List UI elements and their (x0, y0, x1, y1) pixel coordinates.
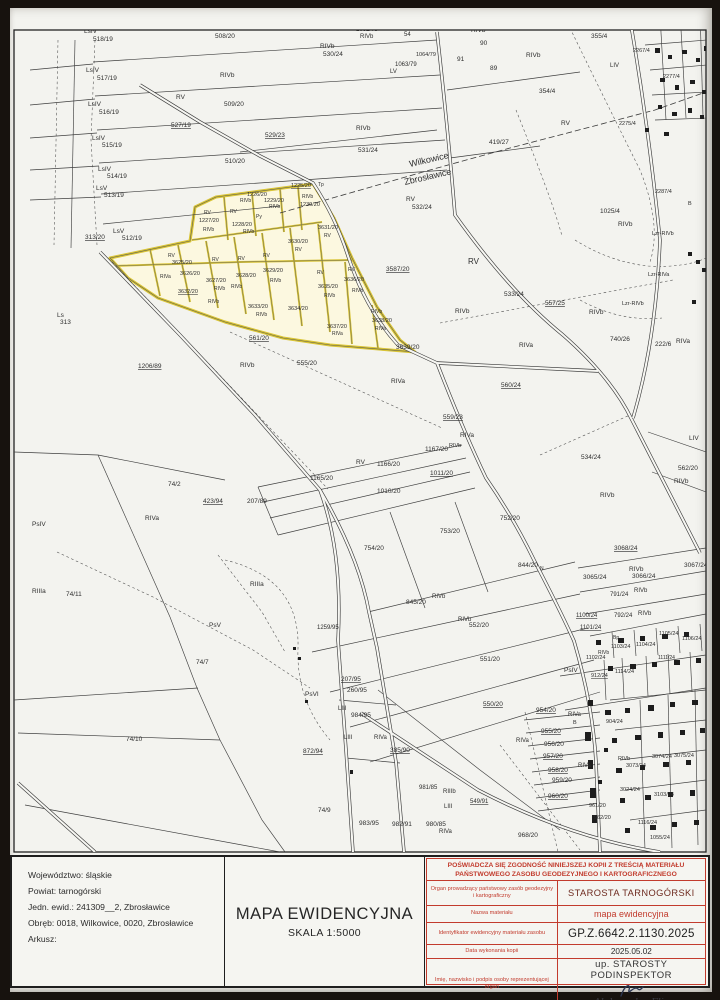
svg-text:355/4: 355/4 (591, 33, 608, 40)
svg-text:LsIV: LsIV (84, 28, 98, 35)
svg-text:RIVa: RIVa (516, 738, 530, 744)
svg-text:2267/4: 2267/4 (633, 48, 650, 54)
svg-text:3626/20: 3626/20 (180, 271, 200, 277)
svg-text:419/27: 419/27 (489, 139, 509, 146)
svg-text:792/24: 792/24 (614, 613, 633, 619)
svg-text:Wilkowice: Wilkowice (408, 150, 449, 169)
svg-text:55: 55 (418, 18, 425, 24)
svg-text:1105/24: 1105/24 (659, 631, 678, 637)
certificate-row-organ: Organ prowadzący państwowy zasób geodezy… (427, 881, 705, 906)
svg-text:958/20: 958/20 (548, 767, 568, 774)
svg-text:527/19: 527/19 (171, 122, 191, 129)
svg-text:3073/24: 3073/24 (626, 763, 646, 769)
parcel-lines (14, 10, 707, 852)
svg-text:508/20: 508/20 (215, 33, 235, 40)
svg-text:960/20: 960/20 (548, 793, 568, 800)
svg-text:3068/24: 3068/24 (614, 545, 638, 552)
svg-text:3065/24: 3065/24 (583, 574, 607, 581)
svg-text:207/95: 207/95 (341, 676, 361, 683)
svg-text:RIVb: RIVb (449, 443, 461, 449)
svg-text:RIVa: RIVa (568, 712, 582, 718)
svg-text:550/20: 550/20 (483, 701, 503, 708)
county: Powiat: tarnogórski (28, 886, 224, 896)
dashed-boundaries (54, 28, 706, 852)
svg-text:RV: RV (406, 196, 416, 203)
svg-text:207/89: 207/89 (247, 498, 267, 505)
svg-text:B: B (688, 201, 692, 207)
svg-text:LIV: LIV (610, 63, 619, 69)
svg-text:RIVb: RIVb (320, 43, 335, 50)
svg-text:RIVb: RIVb (203, 227, 214, 233)
svg-text:LIII: LIII (338, 706, 347, 712)
svg-text:RIVb: RIVb (432, 594, 446, 600)
svg-text:RIVb: RIVb (618, 221, 633, 228)
svg-text:RV: RV (468, 257, 480, 266)
svg-text:514/19: 514/19 (107, 173, 127, 180)
svg-text:1103/24: 1103/24 (611, 644, 630, 650)
svg-text:1259/95: 1259/95 (317, 625, 339, 631)
svg-text:954/20: 954/20 (536, 707, 556, 714)
svg-text:3633/20: 3633/20 (248, 304, 268, 310)
cadastral-map-svg: 519/19LsIV518/19521/19508/20RIVbRV509/20… (0, 0, 720, 855)
svg-text:752/20: 752/20 (500, 515, 520, 522)
svg-text:RIVb: RIVb (400, 23, 414, 29)
svg-text:1116/24: 1116/24 (638, 820, 657, 826)
svg-text:RIVb: RIVb (589, 309, 604, 316)
svg-text:3631/20: 3631/20 (318, 225, 338, 231)
svg-text:RIVa: RIVa (332, 331, 343, 337)
svg-text:530/24: 530/24 (323, 51, 343, 58)
certificate-row-material: Nazwa materiału mapa ewidencyjna (427, 906, 705, 923)
svg-text:3630/20: 3630/20 (288, 239, 308, 245)
material-label: Nazwa materiału (427, 906, 558, 922)
svg-text:518/19: 518/19 (93, 36, 113, 43)
svg-text:RIVb: RIVb (526, 52, 541, 59)
svg-text:PsIV: PsIV (564, 667, 578, 674)
svg-text:RV: RV (176, 94, 186, 101)
certificate-header: POŚWIADCZA SIĘ ZGODNOŚĆ NINIEJSZEJ KOPII… (427, 859, 705, 881)
svg-text:RIVb: RIVb (601, 12, 616, 19)
svg-text:512/19: 512/19 (122, 235, 142, 242)
svg-text:549/91: 549/91 (470, 799, 489, 805)
organ-label: Organ prowadzący państwowy zasób geodezy… (427, 881, 558, 905)
svg-text:LV: LV (390, 69, 397, 75)
svg-text:532/24: 532/24 (412, 204, 432, 211)
svg-text:313: 313 (60, 319, 71, 326)
svg-text:Lzr-RIVa: Lzr-RIVa (648, 272, 670, 278)
svg-text:519/19: 519/19 (62, 13, 82, 20)
signature-icon (618, 982, 644, 998)
svg-text:RV: RV (295, 247, 303, 253)
svg-text:74/7: 74/7 (196, 659, 209, 666)
svg-text:RV: RV (168, 253, 176, 259)
svg-text:3636/20: 3636/20 (344, 277, 364, 283)
svg-text:46: 46 (328, 15, 334, 21)
svg-text:RIVb: RIVb (356, 125, 371, 132)
svg-text:260/95: 260/95 (347, 687, 367, 694)
svg-text:560/24: 560/24 (501, 382, 521, 389)
svg-text:956/20: 956/20 (544, 741, 564, 748)
svg-text:3632/20: 3632/20 (178, 289, 198, 295)
svg-text:3628/20: 3628/20 (236, 273, 256, 279)
svg-text:Lzr-RIVb: Lzr-RIVb (652, 231, 674, 237)
svg-text:RIVb: RIVb (471, 27, 486, 34)
svg-text:RIVa: RIVa (676, 338, 690, 345)
svg-text:957/20: 957/20 (543, 753, 563, 760)
svg-text:LsIV: LsIV (98, 166, 112, 173)
svg-text:RV: RV (348, 267, 356, 273)
title-block: Województwo: śląskie Powiat: tarnogórski… (10, 855, 710, 988)
voivodeship: Województwo: śląskie (28, 870, 224, 880)
svg-text:517/19: 517/19 (97, 75, 117, 82)
svg-text:PsV: PsV (209, 622, 222, 629)
svg-text:423/94: 423/94 (203, 498, 223, 505)
registration-unit: Jedn. ewid.: 241309__2, Zbrosławice (28, 902, 224, 912)
certificate-header-line2: PAŃSTWOWEGO ZASOBU GEODEZYJNEGO I KARTOG… (455, 871, 677, 878)
svg-text:RIVa: RIVa (578, 763, 592, 769)
svg-text:980/85: 980/85 (426, 821, 446, 828)
svg-text:2288/4: 2288/4 (634, 15, 651, 21)
svg-text:791/24: 791/24 (610, 592, 629, 598)
svg-text:1106/24: 1106/24 (682, 636, 701, 642)
map-title: MAPA EWIDENCYJNA (236, 905, 413, 924)
svg-text:RIVa: RIVa (375, 326, 386, 332)
svg-text:RIVb: RIVb (240, 198, 251, 204)
svg-text:RIVa: RIVa (519, 342, 533, 349)
certificate-row-identifier: Identyfikator ewidencyjny materiału zaso… (427, 923, 705, 945)
svg-text:N: N (540, 566, 544, 572)
svg-text:534/24: 534/24 (581, 454, 601, 461)
svg-text:RIVb: RIVb (455, 308, 470, 315)
svg-text:45: 45 (301, 13, 307, 19)
svg-text:385/90: 385/90 (390, 747, 410, 754)
svg-text:RIVb: RIVb (352, 288, 363, 294)
svg-text:1111/24: 1111/24 (658, 655, 675, 661)
svg-text:3067/24: 3067/24 (684, 562, 708, 569)
svg-text:43: 43 (270, 12, 276, 18)
svg-text:PsVI: PsVI (305, 691, 319, 698)
svg-text:1227/20: 1227/20 (199, 218, 219, 224)
certificate-header-line1: POŚWIADCZA SIĘ ZGODNOŚĆ NINIEJSZEJ KOPII… (448, 862, 685, 869)
svg-text:740/26: 740/26 (610, 336, 630, 343)
svg-text:Ls: Ls (57, 312, 65, 319)
svg-text:RIVa: RIVa (374, 735, 388, 741)
svg-text:RV: RV (230, 209, 238, 215)
svg-text:1011/20: 1011/20 (430, 470, 453, 477)
svg-text:968/20: 968/20 (518, 832, 538, 839)
svg-text:RIVb: RIVb (371, 309, 382, 315)
svg-text:74/10: 74/10 (126, 736, 143, 743)
svg-text:RIVb: RIVb (598, 650, 609, 656)
svg-text:513/19: 513/19 (104, 192, 124, 199)
svg-text:89: 89 (490, 65, 498, 72)
svg-text:531/24: 531/24 (358, 147, 378, 154)
svg-text:Tp: Tp (318, 182, 324, 188)
svg-text:LsIV: LsIV (88, 101, 102, 108)
svg-text:RIVb: RIVb (270, 278, 281, 284)
svg-text:3638/20: 3638/20 (372, 318, 392, 324)
svg-text:RV: RV (204, 210, 212, 216)
svg-text:1055/24: 1055/24 (650, 835, 670, 841)
parcel-labels: 519/19LsIV518/19521/19508/20RIVbRV509/20… (32, 12, 708, 841)
svg-text:RIVb: RIVb (634, 588, 648, 594)
svg-text:533/24: 533/24 (504, 291, 524, 298)
map-title-cell: MAPA EWIDENCYJNA SKALA 1:5000 (225, 857, 425, 986)
signature-role: PODINSPEKTOR (591, 971, 672, 982)
precinct: Obręb: 0018, Wilkowice, 0020, Zbrosławic… (28, 918, 224, 928)
svg-text:RV: RV (561, 120, 571, 127)
svg-text:RIVa: RIVa (460, 432, 474, 439)
svg-text:LIV: LIV (689, 435, 699, 442)
svg-text:RIVb: RIVb (208, 299, 219, 305)
organ-value: STAROSTA TARNOGÓRSKI (558, 881, 705, 905)
svg-text:RIVa: RIVa (145, 515, 159, 522)
svg-text:1104/24: 1104/24 (636, 642, 655, 648)
svg-text:515/19: 515/19 (102, 142, 122, 149)
svg-text:555/20: 555/20 (297, 360, 317, 367)
svg-text:1167/20: 1167/20 (425, 446, 448, 453)
svg-text:3627/20: 3627/20 (206, 278, 226, 284)
svg-text:3024/24: 3024/24 (620, 787, 640, 793)
svg-text:RIVb: RIVb (324, 293, 335, 299)
svg-text:313/20: 313/20 (85, 234, 105, 241)
svg-text:754/20: 754/20 (364, 545, 384, 552)
svg-text:753/20: 753/20 (440, 528, 460, 535)
svg-text:Zbrosławice: Zbrosławice (403, 166, 452, 187)
svg-text:Bp: Bp (613, 635, 619, 641)
svg-text:RIVb: RIVb (240, 362, 255, 369)
svg-text:91: 91 (457, 56, 465, 63)
svg-text:959/20: 959/20 (552, 777, 572, 784)
svg-text:984/95: 984/95 (351, 712, 371, 719)
certificate-row-signature: Imię, nazwisko i podpis osoby reprezentu… (427, 959, 705, 1000)
svg-text:1101/24: 1101/24 (580, 625, 602, 631)
sheet-info: Województwo: śląskie Powiat: tarnogórski… (12, 857, 225, 986)
svg-text:983/95: 983/95 (359, 820, 379, 827)
svg-text:551/20: 551/20 (480, 656, 500, 663)
svg-text:RV: RV (356, 459, 366, 466)
svg-text:RIIIb: RIIIb (443, 789, 456, 795)
svg-text:RIVb: RIVb (220, 72, 235, 79)
svg-text:RIVa: RIVa (439, 829, 453, 835)
svg-text:222/6: 222/6 (655, 341, 672, 348)
obreb-boundary-line (280, 92, 706, 213)
svg-text:962/20: 962/20 (594, 815, 611, 821)
svg-text:844/20: 844/20 (518, 562, 538, 569)
svg-text:74/2: 74/2 (168, 481, 181, 488)
svg-text:LIII: LIII (444, 804, 453, 810)
svg-text:3066/24: 3066/24 (632, 573, 656, 580)
svg-text:521/19: 521/19 (157, 12, 177, 19)
svg-text:LsIV: LsIV (86, 67, 100, 74)
svg-text:562/20: 562/20 (678, 465, 698, 472)
svg-text:RIIIa: RIIIa (250, 581, 264, 588)
svg-text:559/23: 559/23 (443, 414, 463, 421)
svg-text:2275/4: 2275/4 (619, 121, 636, 127)
svg-text:1010/20: 1010/20 (377, 488, 401, 495)
svg-text:51: 51 (355, 17, 361, 23)
svg-text:1230/20: 1230/20 (300, 202, 320, 208)
svg-text:RIVa: RIVa (391, 378, 405, 385)
svg-text:54: 54 (404, 32, 411, 38)
svg-text:3625/20: 3625/20 (172, 260, 192, 266)
svg-text:3637/20: 3637/20 (327, 324, 347, 330)
svg-text:3639/20: 3639/20 (396, 344, 420, 351)
svg-text:516/19: 516/19 (99, 109, 119, 116)
certificate-row-date: Data wykonania kopii 2025.05.02 (427, 945, 705, 959)
svg-text:RIVb: RIVb (269, 204, 280, 210)
svg-text:RV: RV (238, 256, 246, 262)
svg-text:LsV: LsV (96, 185, 108, 192)
svg-text:LsIV: LsIV (92, 135, 106, 142)
certificate-cell: POŚWIADCZA SIĘ ZGODNOŚĆ NINIEJSZEJ KOPII… (425, 857, 708, 986)
identifier-value: GP.Z.6642.2.1130.2025 (558, 923, 705, 944)
svg-text:74/9: 74/9 (318, 807, 331, 814)
signature-block: up. STAROSTY PODINSPEKTOR Aleksandra Fli… (558, 959, 705, 1000)
svg-text:981/85: 981/85 (419, 785, 438, 791)
svg-text:1165/20: 1165/20 (310, 475, 333, 482)
svg-text:49: 49 (342, 16, 348, 22)
svg-text:RIVb: RIVb (674, 478, 689, 485)
svg-text:LsV: LsV (113, 228, 125, 235)
svg-text:1114/24: 1114/24 (615, 669, 634, 675)
svg-text:RIVb: RIVb (302, 194, 313, 200)
identifier-label: Identyfikator ewidencyjny materiału zaso… (427, 923, 558, 944)
svg-text:RV: RV (212, 257, 220, 263)
svg-text:3634/20: 3634/20 (288, 306, 308, 312)
svg-text:PsIV: PsIV (32, 521, 46, 528)
sheet-number: Arkusz: (28, 934, 224, 944)
svg-text:510/20: 510/20 (225, 158, 245, 165)
svg-text:1063/79: 1063/79 (395, 62, 417, 68)
signatory-label: Imię, nazwisko i podpis osoby reprezentu… (427, 959, 558, 1000)
svg-text:529/23: 529/23 (265, 132, 285, 139)
svg-text:3074/24: 3074/24 (652, 754, 672, 760)
svg-text:3635/20: 3635/20 (318, 284, 338, 290)
svg-text:RIVb: RIVb (231, 284, 242, 290)
svg-text:RV: RV (317, 270, 325, 276)
svg-text:74/11: 74/11 (66, 591, 82, 598)
copy-date-label: Data wykonania kopii (427, 945, 558, 958)
svg-text:1025/4: 1025/4 (600, 208, 620, 215)
svg-text:LIII: LIII (344, 735, 353, 741)
svg-text:RV: RV (324, 233, 332, 239)
copy-date-value: 2025.05.02 (558, 945, 705, 958)
map-scale: SKALA 1:5000 (288, 927, 361, 939)
svg-text:RIVa: RIVa (160, 274, 171, 280)
scan-page: 519/19LsIV518/19521/19508/20RIVbRV509/20… (0, 0, 720, 1000)
svg-text:3587/20: 3587/20 (386, 266, 410, 273)
svg-text:1225/20: 1225/20 (291, 183, 311, 189)
svg-text:RIVb: RIVb (243, 229, 254, 235)
svg-text:2277/4: 2277/4 (663, 74, 680, 80)
svg-text:1228/20: 1228/20 (232, 222, 252, 228)
svg-text:RIIIa: RIIIa (32, 588, 46, 595)
svg-text:1166/20: 1166/20 (377, 461, 400, 468)
svg-text:RIVb: RIVb (618, 756, 630, 762)
svg-text:RIVb: RIVb (629, 566, 644, 573)
svg-text:44: 44 (284, 12, 290, 18)
svg-text:RIVb: RIVb (360, 34, 374, 40)
certificate-table: POŚWIADCZA SIĘ ZGODNOŚĆ NINIEJSZEJ KOPII… (426, 858, 706, 985)
material-value: mapa ewidencyjna (558, 906, 705, 922)
svg-text:47: 47 (317, 14, 323, 20)
svg-text:RIVb: RIVb (214, 286, 225, 292)
svg-text:561/20: 561/20 (249, 335, 269, 342)
svg-text:2287/4: 2287/4 (655, 189, 672, 195)
svg-text:904/24: 904/24 (606, 719, 623, 725)
svg-text:961/20: 961/20 (589, 803, 606, 809)
svg-text:LIV: LIV (563, 14, 573, 21)
svg-text:557/25: 557/25 (545, 300, 565, 307)
svg-text:Py: Py (256, 214, 262, 220)
svg-text:RIVb: RIVb (600, 492, 615, 499)
svg-text:982/91: 982/91 (392, 821, 412, 828)
svg-text:1206/89: 1206/89 (138, 363, 162, 370)
svg-text:1100/24: 1100/24 (576, 613, 598, 619)
svg-text:552/20: 552/20 (469, 622, 489, 629)
svg-text:509/20: 509/20 (224, 101, 244, 108)
svg-text:53: 53 (388, 26, 395, 32)
svg-text:1062/78: 1062/78 (356, 27, 378, 33)
svg-text:955/20: 955/20 (541, 728, 561, 735)
svg-text:B: B (573, 720, 577, 726)
svg-text:RIVb: RIVb (256, 312, 267, 318)
svg-text:845/20: 845/20 (406, 599, 426, 606)
svg-text:3629/20: 3629/20 (263, 268, 283, 274)
svg-text:912/24: 912/24 (591, 673, 608, 679)
svg-text:872/94: 872/94 (303, 748, 323, 755)
svg-text:RIVb: RIVb (638, 611, 652, 617)
svg-text:90: 90 (480, 40, 488, 47)
svg-text:1064/79: 1064/79 (416, 52, 436, 58)
svg-text:3103/24: 3103/24 (654, 792, 674, 798)
svg-text:3075/24: 3075/24 (674, 753, 694, 759)
svg-text:RV: RV (263, 253, 271, 259)
svg-text:354/4: 354/4 (539, 88, 556, 95)
svg-text:Lzr-RIVb: Lzr-RIVb (622, 301, 644, 307)
